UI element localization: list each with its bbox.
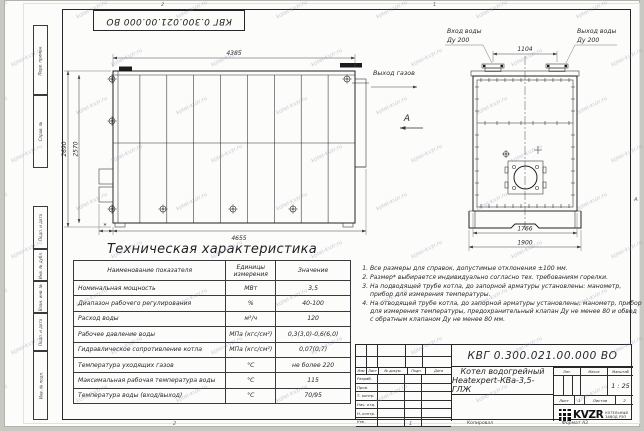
svg-text:1766: 1766 xyxy=(517,226,532,233)
spec-cell: МВт xyxy=(226,281,276,296)
margin-stamp: Инв. № дубл. xyxy=(33,249,48,281)
change-record-grid xyxy=(356,345,451,367)
spec-cell: Рабочее давление воды xyxy=(74,327,226,342)
margin-stamp: Инв. № подл. xyxy=(33,351,48,420)
svg-text:4655: 4655 xyxy=(231,235,246,242)
company-name-line1: КОТЕЛЬНЫЙ xyxy=(605,411,628,415)
svg-text:Ду 200: Ду 200 xyxy=(446,37,469,44)
notes-list: Все размеры для справок, допустимые откл… xyxy=(357,265,642,325)
signature-empty-cell xyxy=(405,418,422,426)
boiler-body-outline xyxy=(113,71,355,223)
sheets-label: Листов xyxy=(585,396,616,404)
empty-cell xyxy=(451,395,553,421)
boiler-side-view: 4385 4655 * 2690 2570 Выход газов А xyxy=(55,21,425,246)
spec-cell: МПа (кгс/см²) xyxy=(226,342,276,357)
spec-cell: 115 xyxy=(276,373,351,388)
dim-star: * xyxy=(104,223,107,230)
margin-stamp: Подп. и дата xyxy=(33,206,48,249)
note-item: На отводящей трубе котла, до запорной ар… xyxy=(370,300,642,324)
panel-seams xyxy=(140,75,328,223)
signature-empty-cell xyxy=(422,384,451,392)
svg-text:Выход воды: Выход воды xyxy=(577,28,617,35)
svg-text:1900: 1900 xyxy=(517,240,532,247)
title-block: КВГ 0.300.021.00.000 ВО Изм Лист № докум… xyxy=(355,344,632,420)
side-nozzles xyxy=(99,169,113,202)
kvzr-wordmark: KVZR xyxy=(573,409,603,421)
spec-row: Рабочее давление водыМПа (кгс/см²)0,3(3,… xyxy=(74,327,351,342)
note-item: На подводящей трубе котла, до запорной а… xyxy=(370,283,642,299)
svg-text:2690: 2690 xyxy=(61,141,68,156)
product-name-cell: Котел водогрейный Heatexpert-КВа-3,5-ГЛЖ xyxy=(451,367,553,395)
sheets-value: 2 xyxy=(616,396,633,404)
signature-row: Т. контр. xyxy=(356,392,451,401)
signature-role-label: Пров. xyxy=(356,384,378,392)
dim-height-outer: 2690 xyxy=(61,71,111,227)
spec-row: Температура воды (вход/выход)°С70/95 xyxy=(74,388,351,403)
target-marker-front xyxy=(502,146,542,158)
sheet-label: Лист xyxy=(554,396,575,404)
watermark-text: kotel-kvzr.ru xyxy=(5,288,9,309)
spec-cell: °С xyxy=(226,373,276,388)
watermark-text: kotel-kvzr.ru xyxy=(5,1,9,20)
signature-empty-cell xyxy=(405,392,422,400)
signature-role-label: Нач. отд. xyxy=(356,401,378,409)
signature-row: Н. контр. xyxy=(356,409,451,418)
spec-table-title: Техническая характеристика xyxy=(73,242,351,257)
spec-cell: Расход воды xyxy=(74,311,226,326)
svg-text:4385: 4385 xyxy=(226,50,241,57)
copied-label: Копировал xyxy=(435,421,525,426)
spec-header-name: Наименование показателя xyxy=(74,261,226,281)
signature-role-label: Разраб. xyxy=(356,375,378,383)
company-name-line2: ЗАВОД РЭП xyxy=(605,415,628,419)
spec-cell: 0,07(0,7) xyxy=(276,342,351,357)
spec-row: Номинальная мощностьМВт3,5 xyxy=(74,281,351,296)
spec-cell: 0,3(3,0)-0,6(6,0) xyxy=(276,327,351,342)
burner-flange xyxy=(505,161,546,194)
drawing-sheet: 2 1 2 1 А КВГ 0.300.021.00.000 ВО Перв. … xyxy=(4,0,640,427)
signature-row: Разраб. xyxy=(356,375,451,384)
scale-label: Масштаб xyxy=(608,368,633,375)
mass-value xyxy=(581,376,608,395)
svg-text:2570: 2570 xyxy=(73,141,80,156)
signature-empty-cell xyxy=(378,392,405,400)
watermark-text: kotel-kvzr.ru xyxy=(5,192,9,213)
lit-label: Лит. xyxy=(554,368,581,375)
kvzr-grid-icon xyxy=(559,409,571,421)
dim-height-inner: 2570 xyxy=(73,75,80,223)
margin-stamp: Перв. примен. xyxy=(33,25,48,95)
outlet-nozzle xyxy=(546,64,568,72)
svg-text:А: А xyxy=(403,114,410,124)
foot-right xyxy=(343,223,353,227)
spec-header-row: Наименование показателя Единицы измерени… xyxy=(74,261,351,281)
spec-cell: 3,5 xyxy=(276,281,351,296)
mass-label: Масса xyxy=(581,368,608,375)
spec-row: Максимальная рабочая температура воды°С1… xyxy=(74,373,351,388)
gas-outlet-flange xyxy=(340,63,362,68)
watermark-text: kotel-kvzr.ru xyxy=(5,96,9,117)
dim-length-top: 4385 xyxy=(113,50,355,67)
margin-stamp: Взам. инв. № xyxy=(33,281,48,313)
signature-empty-cell xyxy=(405,384,422,392)
title-block-doc-number: КВГ 0.300.021.00.000 ВО xyxy=(451,345,633,367)
signature-empty-cell xyxy=(378,375,405,383)
inlet-label: Вход воды Ду 200 xyxy=(445,28,492,63)
signature-role-label: Утв. xyxy=(356,418,378,426)
dim-body-width: 1766 xyxy=(473,213,577,237)
note-item: Размер* выбирается индивидуально согласн… xyxy=(370,274,642,282)
signature-role-label: Н. контр. xyxy=(356,409,378,417)
spec-cell: м³/ч xyxy=(226,311,276,326)
spec-cell: Номинальная мощность xyxy=(74,281,226,296)
spec-header-value: Значение xyxy=(276,261,351,281)
zone-number-bottom-left: 2 xyxy=(173,421,176,427)
spec-header-units: Единицы измерения xyxy=(226,261,276,281)
signature-empty-cell xyxy=(405,375,422,383)
spec-cell: Температура воды (вход/выход) xyxy=(74,388,226,403)
signature-empty-cell xyxy=(422,409,451,417)
spec-cell: Максимальная рабочая температура воды xyxy=(74,373,226,388)
foot-left xyxy=(115,223,125,227)
change-header-row: Изм Лист № докум. Подп. Дата xyxy=(356,367,451,374)
spec-cell: не более 220 xyxy=(276,357,351,372)
spec-cell: % xyxy=(226,296,276,311)
format-label: Формат А3 xyxy=(540,421,610,426)
zone-number-top-right: 1 xyxy=(433,2,436,8)
signature-row: Пров. xyxy=(356,384,451,393)
signature-rows: Разраб.Пров.Т. контр.Нач. отд.Н. контр.У… xyxy=(356,374,451,420)
product-name-line2: Heatexpert-КВа-3,5-ГЛЖ xyxy=(452,376,553,394)
signature-role-label: Т. контр. xyxy=(356,392,378,400)
spec-cell: Температура уходящих газов xyxy=(74,357,226,372)
signature-empty-cell xyxy=(378,401,405,409)
svg-text:Вход воды: Вход воды xyxy=(447,28,482,35)
boiler-front-view: 1104 Вход воды Ду 200 Выход воды Ду 200 … xyxy=(425,21,640,271)
spec-row: Гидравлическое сопротивление котлаМПа (к… xyxy=(74,342,351,357)
dim-length-bottom: 4655 * xyxy=(99,169,366,242)
watermark-text: kotel-kvzr.ru xyxy=(5,384,9,405)
signature-empty-cell xyxy=(405,401,422,409)
signature-empty-cell xyxy=(378,409,405,417)
margin-stamp: Справ. № xyxy=(33,95,48,168)
signature-empty-cell xyxy=(422,401,451,409)
spec-cell: МПа (кгс/см²) xyxy=(226,327,276,342)
zone-number-top-left: 2 xyxy=(161,2,164,8)
spec-cell: °С xyxy=(226,357,276,372)
signature-empty-cell xyxy=(422,392,451,400)
gas-outlet-label: Выход газов xyxy=(373,69,415,77)
view-a-arrow: А xyxy=(400,114,423,128)
product-name-line1: Котел водогрейный xyxy=(461,367,545,376)
spec-row: Расход водым³/ч120 xyxy=(74,311,351,326)
svg-text:1104: 1104 xyxy=(517,46,532,53)
scale-value: 1 : 25 xyxy=(608,376,633,395)
svg-text:Ду 200: Ду 200 xyxy=(576,37,599,44)
spec-row: Диапазон рабочего регулирования%40-100 xyxy=(74,296,351,311)
signature-row: Нач. отд. xyxy=(356,401,451,410)
spec-table: Наименование показателя Единицы измерени… xyxy=(73,260,351,404)
spec-cell: 40-100 xyxy=(276,296,351,311)
lifting-lug xyxy=(119,67,132,72)
signature-empty-cell xyxy=(378,418,405,426)
sheet-value: 1 xyxy=(575,396,585,404)
signature-empty-cell xyxy=(422,375,451,383)
note-item: Все размеры для справок, допустимые откл… xyxy=(370,265,642,273)
signature-empty-cell xyxy=(378,384,405,392)
margin-stamp: Подп. и дата xyxy=(33,313,48,351)
spec-cell: Диапазон рабочего регулирования xyxy=(74,296,226,311)
spec-cell: Гидравлическое сопротивление котла xyxy=(74,342,226,357)
spec-row: Температура уходящих газов°Сне более 220 xyxy=(74,357,351,372)
spec-cell: 70/95 xyxy=(276,388,351,403)
signature-empty-cell xyxy=(405,409,422,417)
lit-mass-scale-block: Лит. Масса Масштаб 1 : 25 Лист 1 Листов … xyxy=(553,367,633,421)
spec-cell: 120 xyxy=(276,311,351,326)
outlet-label: Выход воды Ду 200 xyxy=(566,28,617,63)
spec-cell: °С xyxy=(226,388,276,403)
inlet-nozzle xyxy=(482,64,504,72)
